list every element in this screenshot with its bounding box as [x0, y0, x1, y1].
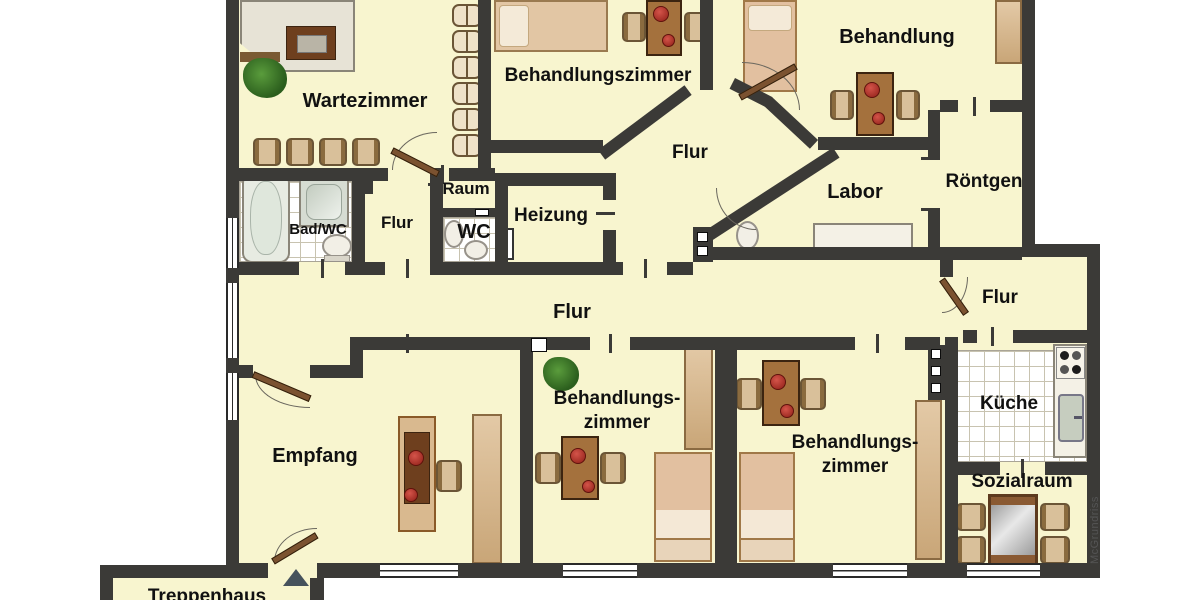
wall [495, 173, 603, 186]
wall [100, 565, 113, 600]
chair [1040, 503, 1070, 531]
wall [630, 337, 855, 350]
waiting-chair [352, 138, 380, 166]
office-chair [653, 6, 669, 22]
door-tick [876, 334, 879, 353]
door-tick [973, 97, 976, 116]
burner [1060, 365, 1069, 374]
watermark-credit: McGrundriss [1089, 488, 1101, 564]
label-line1: Behandlungs- [792, 432, 919, 453]
shower-tray [306, 184, 342, 220]
shelf-niche [931, 366, 941, 376]
reception-desk [286, 26, 336, 60]
window [226, 218, 239, 268]
bathtub-basin [250, 181, 282, 255]
chair [896, 90, 920, 120]
room-label-kueche: Küche [954, 393, 1064, 415]
office-chair [404, 488, 418, 502]
wall [713, 247, 1022, 260]
desk [762, 360, 800, 426]
wall [940, 100, 958, 112]
wall [520, 337, 533, 563]
wall [310, 578, 324, 600]
wall-shelf [693, 227, 713, 262]
room-label-flur-left: Flur [367, 213, 427, 233]
chair [800, 378, 826, 410]
door-tick [609, 334, 612, 353]
pillow [499, 5, 529, 47]
toilet-tank [324, 255, 350, 262]
shelf-niche [475, 209, 489, 216]
room-label-treppenhaus: Treppenhaus [122, 586, 292, 600]
office-chair [662, 34, 675, 47]
wall [358, 168, 373, 194]
shelf-niche [931, 349, 941, 359]
door-tick [406, 259, 409, 278]
stairs-direction-arrow [283, 569, 309, 586]
room-label-behandlung: Behandlung [807, 26, 987, 49]
shelf-niche [697, 246, 708, 256]
table-edge [991, 497, 1035, 505]
bathtub [242, 173, 290, 263]
window [226, 283, 239, 358]
room-label-sozialraum: Sozialraum [947, 471, 1097, 493]
room-label-labor: Labor [805, 181, 905, 204]
blanket [656, 510, 710, 538]
window [380, 563, 458, 578]
wall [928, 210, 940, 247]
plant [543, 357, 579, 391]
window [833, 563, 907, 578]
office-chair [770, 374, 786, 390]
wall [818, 137, 928, 150]
room-label-wartezimmer: Wartezimmer [275, 90, 455, 113]
chair [600, 452, 626, 484]
wall [363, 337, 590, 350]
wall [715, 337, 737, 563]
wall [667, 262, 693, 275]
label-line1: Behandlungs- [554, 388, 681, 409]
stove [1056, 347, 1085, 379]
table-edge [991, 555, 1035, 563]
office-chair [864, 82, 880, 98]
label-line2: zimmer [822, 456, 889, 477]
chair [736, 378, 762, 410]
shower [299, 177, 349, 227]
wall [239, 168, 358, 181]
bed [494, 0, 608, 52]
wall [1022, 244, 1100, 257]
wall [430, 262, 623, 275]
room-label-wc: WC [449, 221, 499, 244]
chair [956, 536, 986, 564]
chair [830, 90, 854, 120]
wall [1013, 330, 1087, 343]
door-tick [921, 208, 940, 211]
wall [990, 100, 1022, 112]
wall [239, 262, 299, 275]
label-line2: zimmer [584, 412, 651, 433]
burner [1072, 351, 1081, 360]
chair [622, 12, 646, 42]
room-label-raum: Raum [436, 179, 496, 199]
waiting-chair [319, 138, 347, 166]
wall [491, 140, 603, 153]
wall [963, 330, 977, 343]
door-tick [321, 259, 324, 278]
floor-plan: Wartezimmer Behandlungszimmer Behandlung… [0, 0, 1200, 600]
waiting-chair [286, 138, 314, 166]
bed [654, 452, 712, 562]
wall [603, 230, 616, 262]
room-label-empfang: Empfang [240, 445, 390, 468]
cabinet [995, 0, 1022, 64]
door-tick [406, 334, 409, 353]
room-label-bad-wc: Bad/WC [278, 221, 358, 238]
room-label-behandlungszimmer-top: Behandlungszimmer [488, 65, 708, 87]
wall [945, 337, 958, 563]
wall [310, 365, 363, 378]
room-label-flur-top: Flur [650, 142, 730, 164]
room-label-flur-main: Flur [532, 301, 612, 324]
wall [100, 565, 226, 578]
bed-foot [656, 538, 710, 560]
room-label-roentgen: Röntgen [919, 171, 1049, 193]
cabinet [472, 414, 502, 564]
wall [1022, 0, 1035, 257]
cabinet [915, 400, 942, 560]
bed-foot [741, 538, 793, 560]
office-chair [872, 112, 885, 125]
blanket [741, 510, 793, 538]
door-tick [991, 327, 994, 346]
chair [535, 452, 561, 484]
door-tick [644, 259, 647, 278]
room-label-behandlungszimmer-right: Behandlungs- zimmer [765, 431, 945, 479]
office-chair [408, 450, 424, 466]
wall [603, 173, 616, 200]
room-label-behandlungszimmer-mid: Behandlungs- zimmer [527, 387, 707, 435]
wall [345, 262, 385, 275]
window [967, 563, 1040, 578]
shelf-niche [931, 383, 941, 393]
office-chair [582, 480, 595, 493]
waiting-chair [253, 138, 281, 166]
pillow [748, 5, 792, 31]
office-chair [570, 448, 586, 464]
chair [956, 503, 986, 531]
burner [1072, 365, 1081, 374]
wall [239, 365, 253, 378]
wall-shelf [928, 345, 945, 400]
wall [226, 563, 1087, 578]
room-label-flur-right: Flur [960, 287, 1040, 309]
window [563, 563, 637, 578]
wall [373, 168, 388, 181]
shelf-niche [697, 232, 708, 242]
door-tick [921, 157, 940, 160]
monitor [297, 35, 327, 53]
chair [436, 460, 462, 492]
room-label-heizung: Heizung [496, 205, 606, 227]
burner [1060, 351, 1069, 360]
faucet [1074, 416, 1082, 419]
window [226, 373, 239, 420]
shelf-niche [531, 338, 547, 352]
dining-table [988, 494, 1038, 566]
wall [928, 110, 940, 158]
office-chair [780, 404, 794, 418]
chair [1040, 536, 1070, 564]
